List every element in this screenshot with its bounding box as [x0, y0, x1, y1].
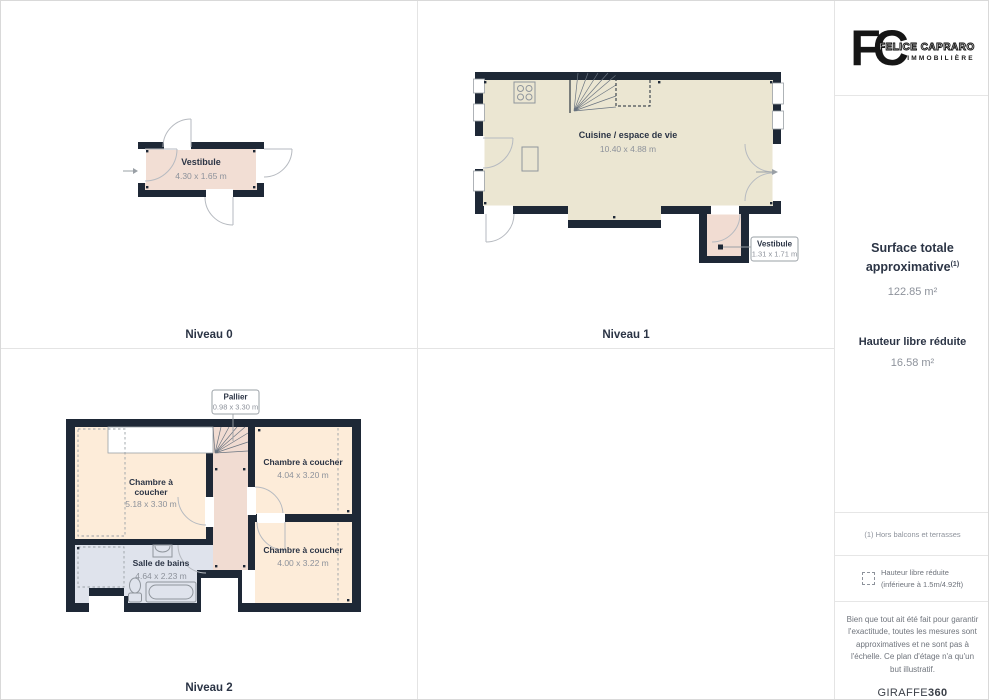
niveau1-plan: Cuisine / espace de vie 10.40 x 4.88 m V… [418, 1, 834, 349]
floorplan-sheet: Vestibule 4.30 x 1.65 m Niveau 0 [0, 0, 989, 700]
footnote: (1) Hors balcons et terrasses [835, 513, 989, 556]
surface-summary: Surface totale approximative(1) 122.85 m… [835, 96, 989, 513]
footnote-marker: (1) [951, 260, 960, 267]
svg-text:Chambre à: Chambre à [129, 477, 173, 487]
room-dims-chambre1: 5.18 x 3.30 m [125, 499, 177, 509]
room-label-vestibule0: Vestibule [181, 157, 221, 167]
niveau2-quadrant: Pallier 0.98 x 3.30 m Chambre à coucher … [1, 349, 418, 700]
niveau2-plan: Pallier 0.98 x 3.30 m Chambre à coucher … [1, 349, 418, 700]
niveau2-label: Niveau 2 [1, 682, 417, 694]
brand-name: FELICE CAPRARO [879, 42, 975, 53]
sidebar: FC FELICE CAPRARO IMMOBILIÈRE Surface to… [834, 1, 989, 700]
room-dims-cuisine: 10.40 x 4.88 m [600, 144, 656, 154]
empty-quadrant [418, 349, 834, 700]
room-label-cuisine: Cuisine / espace de vie [579, 130, 678, 140]
reduced-height-title: Hauteur libre réduite [859, 336, 967, 348]
room-dims-salledebains: 4.64 x 2.23 m [135, 571, 187, 581]
room-dims-vestibule0: 4.30 x 1.65 m [175, 171, 227, 181]
reduced-height-legend: Hauteur libre réduite (inférieure à 1.5m… [835, 556, 989, 602]
room-label-vestibule1: Vestibule [757, 240, 793, 249]
room-label-chambre2: Chambre à coucher [263, 457, 343, 467]
room-dims-chambre2: 4.04 x 3.20 m [277, 470, 329, 480]
room-label-pallier: Pallier [223, 393, 247, 402]
reduced-height-value: 16.58 m² [891, 357, 934, 369]
legend-text: Hauteur libre réduite (inférieure à 1.5m… [881, 567, 963, 590]
room-dims-pallier: 0.98 x 3.30 m [213, 403, 258, 412]
disclaimer-text: Bien que tout ait été fait pour garantir… [846, 614, 980, 676]
room-label-salledebains: Salle de bains [133, 558, 190, 568]
surface-title: Surface totale approximative(1) [866, 239, 959, 275]
brand-logo: FC FELICE CAPRARO IMMOBILIÈRE [835, 1, 989, 96]
niveau1-label: Niveau 1 [418, 329, 834, 341]
niveau1-quadrant: Cuisine / espace de vie 10.40 x 4.88 m V… [418, 1, 834, 349]
room-dims-chambre3: 4.00 x 3.22 m [277, 558, 329, 568]
niveau0-quadrant: Vestibule 4.30 x 1.65 m Niveau 0 [1, 1, 418, 349]
disclaimer: Bien que tout ait été fait pour garantir… [835, 602, 989, 700]
svg-text:coucher: coucher [134, 487, 168, 497]
room-dims-vestibule1: 1.31 x 1.71 m [752, 250, 797, 259]
giraffe360-watermark: GIRAFFE360 [877, 687, 947, 699]
surface-value: 122.85 m² [888, 286, 938, 298]
niveau0-plan: Vestibule 4.30 x 1.65 m [1, 1, 418, 349]
niveau1-walls [475, 72, 781, 263]
niveau0-label: Niveau 0 [1, 329, 417, 341]
entry-arrow-icon [123, 168, 138, 174]
dashed-area-icon [862, 572, 875, 585]
brand-subtitle: IMMOBILIÈRE [879, 55, 975, 62]
room-label-chambre3: Chambre à coucher [263, 545, 343, 555]
niveau0-walls [137, 141, 265, 198]
